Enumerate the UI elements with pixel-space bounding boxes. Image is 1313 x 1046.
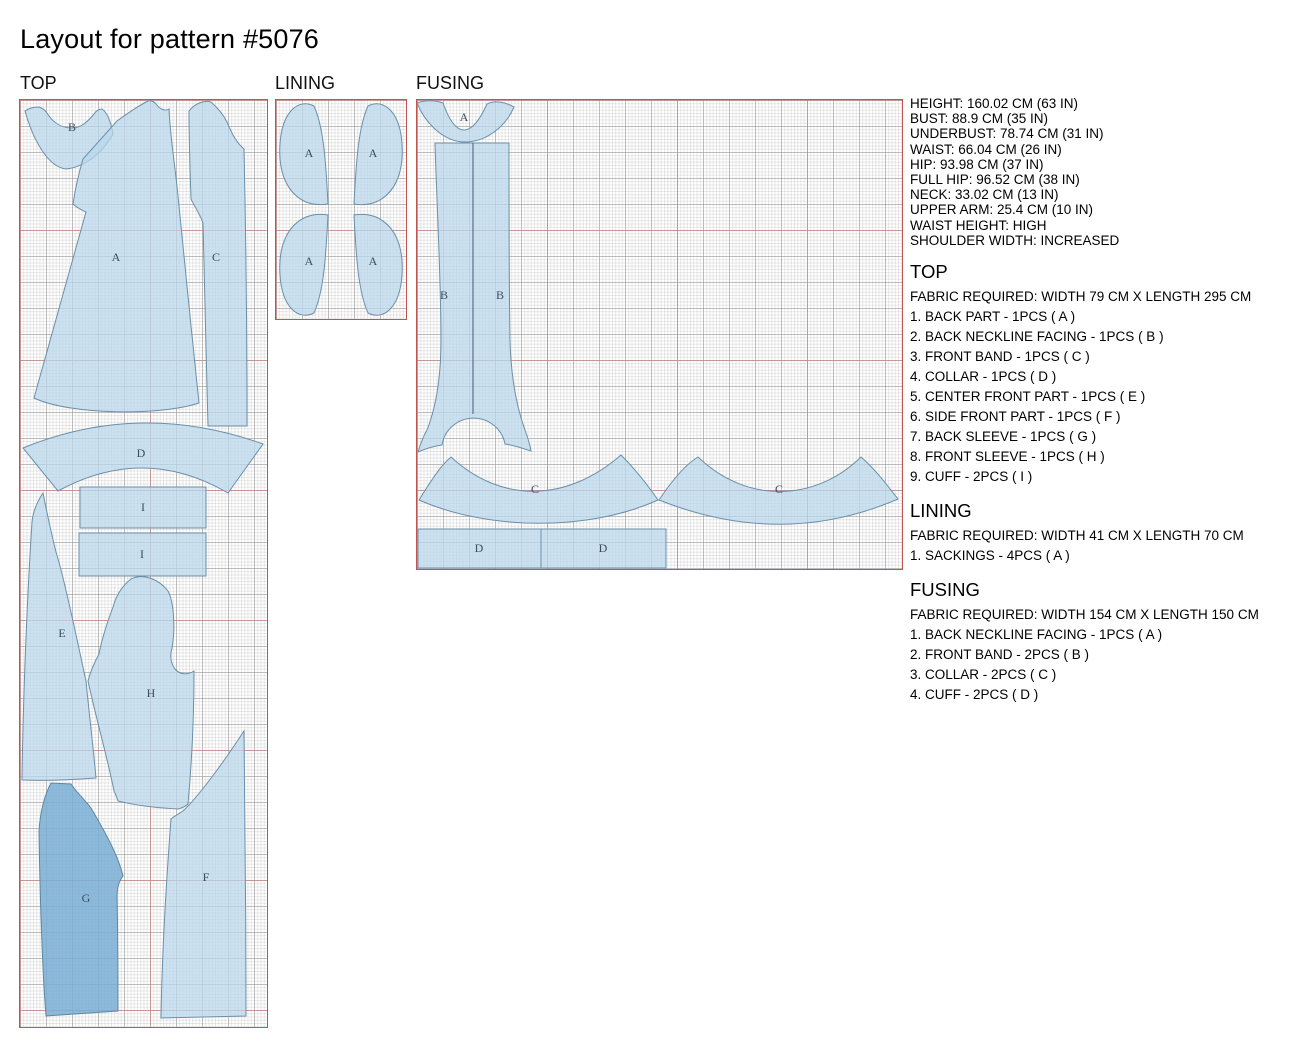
- fusing-layout-drawing: A B B C C D D: [417, 100, 902, 569]
- top-piece-item: 9. CUFF - 2PCS ( I ): [910, 467, 1310, 487]
- measurement-line: SHOULDER WIDTH: INCREASED: [910, 233, 1310, 248]
- fusing-layout-panel: A B B C C D D: [416, 99, 903, 570]
- fusing-piece-item: 2. FRONT BAND - 2PCS ( B ): [910, 645, 1310, 665]
- piece-sacking-2: [354, 104, 402, 205]
- piece-label: E: [58, 626, 65, 640]
- top-piece-item: 4. COLLAR - 1PCS ( D ): [910, 367, 1310, 387]
- piece-sacking-4: [354, 214, 402, 315]
- top-piece-item: 5. CENTER FRONT PART - 1PCS ( E ): [910, 387, 1310, 407]
- piece-label: D: [137, 446, 146, 460]
- piece-label: C: [212, 250, 220, 264]
- measurement-line: WAIST HEIGHT: HIGH: [910, 218, 1310, 233]
- fusing-panel-label: FUSING: [416, 73, 484, 94]
- top-layout-panel: B A C D I I E H G F: [19, 99, 268, 1028]
- piece-label: I: [141, 500, 145, 514]
- top-piece-item: 6. SIDE FRONT PART - 1PCS ( F ): [910, 407, 1310, 427]
- measurement-line: BUST: 88.9 CM (35 IN): [910, 111, 1310, 126]
- piece-label: A: [460, 110, 469, 124]
- piece-label: B: [68, 120, 76, 134]
- fusing-fabric-required: FABRIC REQUIRED: WIDTH 154 CM X LENGTH 1…: [910, 605, 1310, 625]
- piece-label: I: [140, 547, 144, 561]
- piece-label: B: [496, 288, 504, 302]
- lining-panel-label: LINING: [275, 73, 335, 94]
- piece-label: A: [305, 146, 314, 160]
- piece-label: A: [305, 254, 314, 268]
- measurement-line: UPPER ARM: 25.4 CM (10 IN): [910, 202, 1310, 217]
- top-panel-label: TOP: [20, 73, 57, 94]
- piece-label: A: [369, 254, 378, 268]
- piece-label: D: [475, 541, 484, 555]
- piece-label: G: [82, 891, 91, 905]
- piece-label: C: [531, 482, 539, 496]
- top-piece-item: 3. FRONT BAND - 1PCS ( C ): [910, 347, 1310, 367]
- page-title: Layout for pattern #5076: [20, 24, 319, 55]
- top-layout-drawing: B A C D I I E H G F: [20, 100, 267, 1027]
- measurement-line: HEIGHT: 160.02 CM (63 IN): [910, 96, 1310, 111]
- piece-label: A: [369, 146, 378, 160]
- piece-label: B: [440, 288, 448, 302]
- top-piece-item: 7. BACK SLEEVE - 1PCS ( G ): [910, 427, 1310, 447]
- top-piece-item: 2. BACK NECKLINE FACING - 1PCS ( B ): [910, 327, 1310, 347]
- measurement-line: NECK: 33.02 CM (13 IN): [910, 187, 1310, 202]
- top-fabric-required: FABRIC REQUIRED: WIDTH 79 CM X LENGTH 29…: [910, 287, 1310, 307]
- measurement-line: HIP: 93.98 CM (37 IN): [910, 157, 1310, 172]
- info-sidebar: HEIGHT: 160.02 CM (63 IN) BUST: 88.9 CM …: [910, 96, 1310, 705]
- piece-front-sleeve: [88, 577, 194, 809]
- lining-section-heading: LINING: [910, 500, 1310, 522]
- measurement-line: WAIST: 66.04 CM (26 IN): [910, 142, 1310, 157]
- top-piece-item: 8. FRONT SLEEVE - 1PCS ( H ): [910, 447, 1310, 467]
- fusing-piece-item: 4. CUFF - 2PCS ( D ): [910, 685, 1310, 705]
- fusing-section-heading: FUSING: [910, 579, 1310, 601]
- piece-label: H: [147, 686, 156, 700]
- piece-label: C: [775, 482, 783, 496]
- fusing-piece-item: 3. COLLAR - 2PCS ( C ): [910, 665, 1310, 685]
- measurement-line: UNDERBUST: 78.74 CM (31 IN): [910, 126, 1310, 141]
- pattern-layout-page: { "title": "Layout for pattern #5076", "…: [0, 0, 1313, 1046]
- piece-label: D: [599, 541, 608, 555]
- piece-label: A: [112, 250, 121, 264]
- lining-piece-item: 1. SACKINGS - 4PCS ( A ): [910, 546, 1310, 566]
- lining-layout-panel: A A A A: [275, 99, 407, 320]
- piece-front-band-pair: [418, 143, 531, 452]
- lining-fabric-required: FABRIC REQUIRED: WIDTH 41 CM X LENGTH 70…: [910, 526, 1310, 546]
- measurements-block: HEIGHT: 160.02 CM (63 IN) BUST: 88.9 CM …: [910, 96, 1310, 248]
- piece-label: F: [203, 870, 210, 884]
- measurement-line: FULL HIP: 96.52 CM (38 IN): [910, 172, 1310, 187]
- fusing-piece-item: 1. BACK NECKLINE FACING - 1PCS ( A ): [910, 625, 1310, 645]
- lining-layout-drawing: A A A A: [276, 100, 406, 319]
- top-piece-item: 1. BACK PART - 1PCS ( A ): [910, 307, 1310, 327]
- top-section-heading: TOP: [910, 261, 1310, 283]
